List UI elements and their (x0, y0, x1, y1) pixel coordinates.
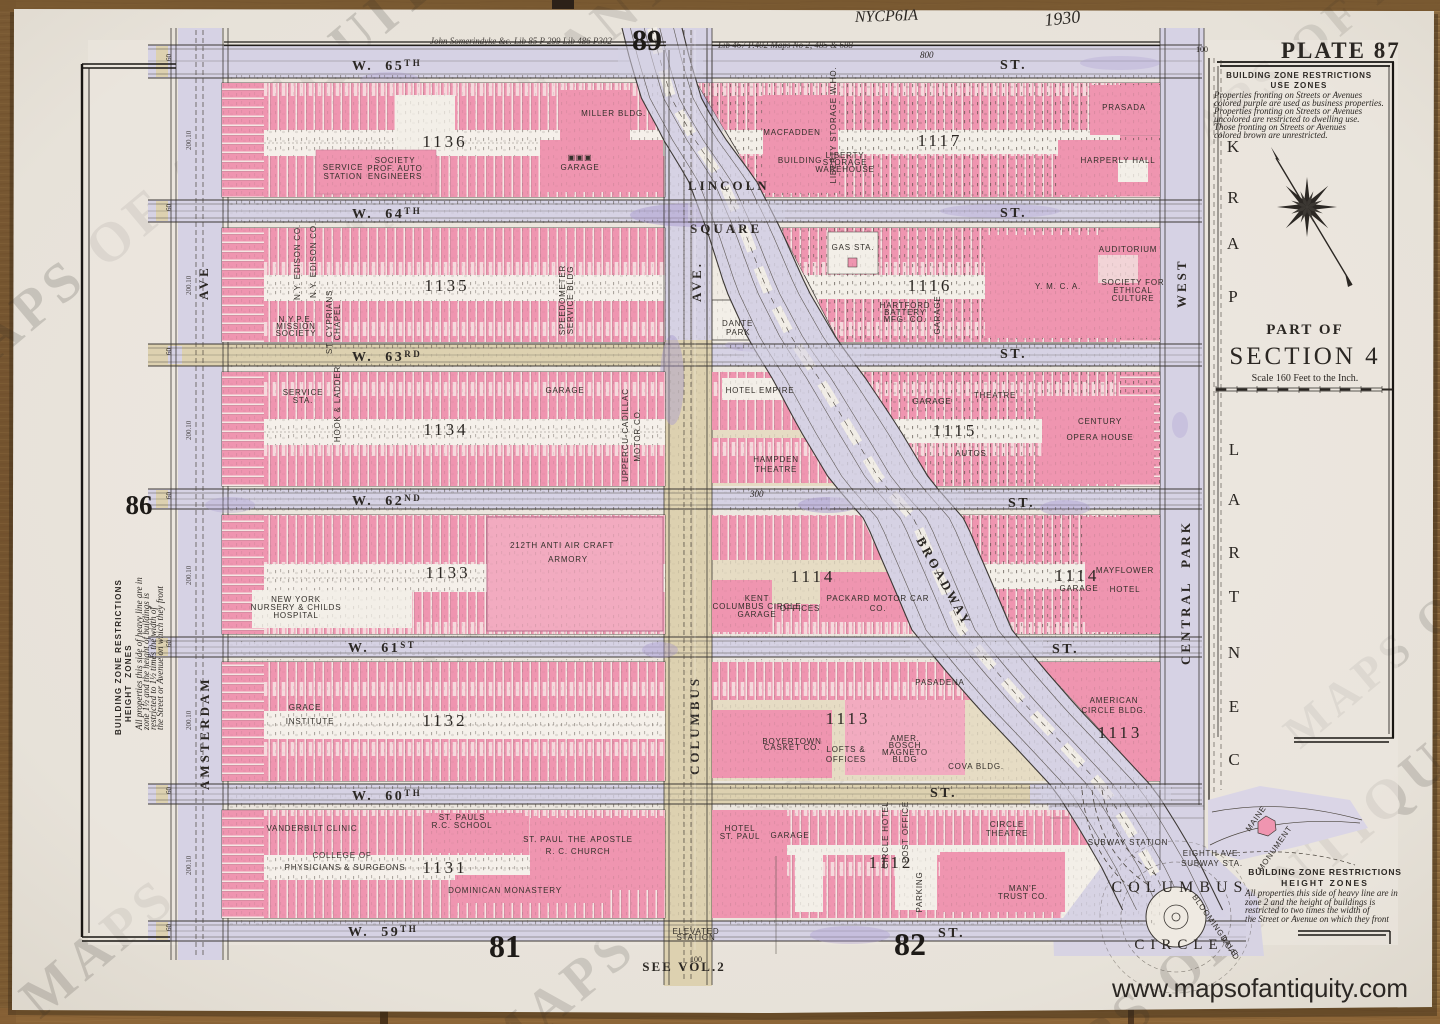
svg-text:GARAGE: GARAGE (545, 386, 584, 395)
svg-text:SECTION 4: SECTION 4 (1229, 343, 1380, 370)
svg-text:1136: 1136 (422, 132, 467, 151)
svg-text:BUILDING ZONE RESTRICTIONS: BUILDING ZONE RESTRICTIONS (1226, 71, 1372, 80)
svg-text:1133: 1133 (425, 563, 470, 582)
svg-text:PARK: PARK (726, 328, 750, 337)
svg-text:AVE: AVE (196, 265, 211, 300)
svg-text:N.Y. EDISON CO.: N.Y. EDISON CO. (309, 222, 318, 298)
svg-text:GARAGE: GARAGE (1059, 584, 1098, 593)
svg-text:1132: 1132 (422, 711, 467, 730)
svg-text:800: 800 (920, 50, 934, 60)
svg-text:AUTOS: AUTOS (955, 449, 986, 458)
svg-text:OPERA HOUSE: OPERA HOUSE (1066, 433, 1133, 442)
svg-text:LINCOLN: LINCOLN (688, 178, 770, 193)
svg-text:200.10: 200.10 (185, 565, 193, 585)
svg-text:CO.: CO. (870, 604, 887, 613)
svg-text:STA.: STA. (293, 396, 313, 405)
svg-text:COLUMBUS: COLUMBUS (1112, 879, 1249, 896)
svg-text:1117: 1117 (918, 131, 963, 150)
svg-text:MILLER: MILLER (581, 109, 615, 118)
svg-text:R.C. SCHOOL: R.C. SCHOOL (432, 821, 493, 830)
svg-text:ARMORY: ARMORY (548, 555, 588, 564)
svg-text:HOSPITAL: HOSPITAL (273, 611, 318, 620)
svg-text:CENTRAL PARK: CENTRAL PARK (1178, 520, 1193, 665)
svg-text:UPPERCU-CADILLAC: UPPERCU-CADILLAC (621, 388, 630, 482)
svg-text:the Street or Avenue on which: the Street or Avenue on which they front (1245, 914, 1389, 924)
svg-text:81: 81 (489, 928, 521, 964)
svg-text:CIRCLE HOTEL: CIRCLE HOTEL (881, 801, 890, 869)
svg-text:N: N (1228, 643, 1240, 662)
svg-text:TRUST CO.: TRUST CO. (998, 892, 1048, 901)
svg-text:DOMINICAN MONASTERY: DOMINICAN MONASTERY (448, 886, 562, 895)
svg-text:THEATRE: THEATRE (974, 391, 1016, 400)
svg-text:1115: 1115 (933, 421, 978, 440)
svg-text:HARPERLY HALL: HARPERLY HALL (1080, 156, 1155, 165)
svg-text:CENTURY: CENTURY (1078, 417, 1122, 426)
svg-text:60: 60 (165, 492, 173, 500)
svg-text:R: R (1228, 543, 1240, 562)
svg-text:BUILDING: BUILDING (778, 156, 822, 165)
svg-text:www.mapsofantiquity.com: www.mapsofantiquity.com (1111, 973, 1408, 1003)
svg-text:89: 89 (632, 24, 662, 57)
svg-text:ENGINEERS: ENGINEERS (368, 172, 422, 181)
svg-text:60: 60 (165, 787, 173, 795)
svg-text:USE ZONES: USE ZONES (1270, 81, 1327, 90)
svg-text:GRACE: GRACE (289, 703, 321, 712)
svg-text:200.10: 200.10 (185, 710, 193, 730)
svg-text:WAREHOUSE: WAREHOUSE (815, 165, 874, 174)
svg-text:John Somerindyke &c. Lib 85 P: John Somerindyke &c. Lib 85 P 299 Lib 48… (430, 36, 612, 46)
svg-text:Y. M. C. A.: Y. M. C. A. (1035, 282, 1081, 291)
svg-text:CIRCLE: CIRCLE (990, 820, 1024, 829)
svg-text:COVA BLDG.: COVA BLDG. (948, 762, 1004, 771)
svg-text:1114: 1114 (1055, 566, 1100, 585)
svg-text:A: A (1228, 490, 1241, 509)
svg-text:BUILDING ZONE RESTRICTIONS: BUILDING ZONE RESTRICTIONS (1248, 867, 1402, 877)
svg-text:STATION: STATION (676, 933, 715, 942)
svg-text:DANTE: DANTE (722, 319, 753, 328)
svg-text:1114: 1114 (791, 567, 836, 586)
svg-text:NYCP6IA: NYCP6IA (854, 7, 919, 26)
svg-text:AMERICAN: AMERICAN (1090, 696, 1139, 705)
svg-text:GARAGE: GARAGE (770, 831, 809, 840)
svg-text:1116: 1116 (908, 276, 953, 295)
svg-text:ST.: ST. (1052, 642, 1079, 657)
svg-text:CULTURE: CULTURE (1112, 294, 1155, 303)
svg-text:HOTEL EMPIRE: HOTEL EMPIRE (726, 386, 795, 395)
svg-text:colored brown are unrestricted: colored brown are unrestricted. (1214, 130, 1328, 140)
svg-text:SERVICE: SERVICE (323, 163, 364, 172)
svg-text:R. C. CHURCH: R. C. CHURCH (546, 847, 611, 856)
svg-text:200.10: 200.10 (185, 275, 193, 295)
svg-text:PARKING: PARKING (915, 871, 924, 912)
svg-text:86: 86 (126, 490, 153, 520)
svg-text:1113: 1113 (1098, 723, 1143, 742)
svg-text:COLLEGE OF: COLLEGE OF (312, 851, 371, 860)
svg-text:60: 60 (165, 924, 173, 932)
svg-text:GARAGE: GARAGE (560, 163, 599, 172)
svg-text:PLATE 87: PLATE 87 (1281, 38, 1401, 63)
svg-text:PHYSICIANS & SURGEONS: PHYSICIANS & SURGEONS (285, 863, 406, 872)
svg-text:PACKARD MOTOR CAR: PACKARD MOTOR CAR (827, 594, 930, 603)
svg-text:1134: 1134 (423, 420, 468, 439)
svg-text:STATION: STATION (323, 172, 362, 181)
svg-text:LOFTS &: LOFTS & (827, 745, 866, 754)
svg-text:1930: 1930 (1043, 6, 1081, 30)
svg-text:60: 60 (165, 640, 173, 648)
svg-text:ST. PAUL THE APOSTLE: ST. PAUL THE APOSTLE (523, 835, 633, 844)
svg-text:R: R (1227, 188, 1239, 207)
svg-text:CASKET CO.: CASKET CO. (764, 743, 820, 752)
svg-text:OFFICES: OFFICES (780, 604, 820, 613)
svg-text:Lib 467 P.402 Maps No 2, 485: Lib 467 P.402 Maps No 2, 485 & 688 (717, 40, 853, 50)
svg-text:ST.: ST. (1000, 206, 1027, 221)
svg-text:A: A (1227, 234, 1240, 253)
svg-text:THEATRE: THEATRE (986, 829, 1028, 838)
svg-text:HEIGHT ZONES: HEIGHT ZONES (124, 644, 133, 722)
svg-text:1135: 1135 (424, 276, 469, 295)
svg-text:PASADENA: PASADENA (915, 678, 964, 687)
svg-text:PRASADA: PRASADA (1102, 103, 1146, 112)
svg-text:1131: 1131 (422, 858, 467, 877)
svg-text:VANDERBILT CLINIC: VANDERBILT CLINIC (267, 824, 358, 833)
svg-text:HAMPDEN: HAMPDEN (753, 455, 799, 464)
svg-text:PART OF: PART OF (1266, 322, 1344, 338)
svg-text:POST OFFICE: POST OFFICE (901, 801, 910, 863)
svg-text:60: 60 (165, 54, 173, 62)
svg-text:212TH ANTI AIR CRAFT: 212TH ANTI AIR CRAFT (510, 541, 614, 550)
svg-text:N.Y. EDISON CO.: N.Y. EDISON CO. (293, 224, 302, 300)
svg-text:ST. PAUL: ST. PAUL (720, 832, 761, 841)
svg-text:the Street or Avenue on which: the Street or Avenue on which they front (155, 586, 165, 730)
svg-text:SQUARE: SQUARE (690, 221, 762, 236)
svg-text:GARAGE: GARAGE (737, 610, 776, 619)
svg-text:200.10: 200.10 (185, 855, 193, 875)
svg-text:GAS STA.: GAS STA. (832, 243, 875, 252)
svg-text:MAYFLOWER: MAYFLOWER (1096, 566, 1154, 575)
svg-text:Scale 160 Feet to the Inch.: Scale 160 Feet to the Inch. (1252, 373, 1359, 384)
svg-text:60: 60 (165, 348, 173, 356)
svg-text:E: E (1229, 697, 1239, 716)
svg-text:SOCIETY: SOCIETY (276, 329, 317, 338)
svg-text:AMSTERDAM: AMSTERDAM (197, 676, 212, 790)
svg-text:ST.: ST. (938, 926, 965, 941)
svg-text:WEST: WEST (1174, 258, 1189, 308)
svg-text:100: 100 (1196, 45, 1208, 54)
svg-text:ST.: ST. (930, 786, 957, 801)
svg-text:▣▣▣: ▣▣▣ (567, 153, 592, 162)
svg-text:L: L (1229, 440, 1239, 459)
svg-text:100: 100 (690, 955, 702, 964)
svg-text:T: T (1229, 587, 1240, 606)
svg-text:SEE VOL.2: SEE VOL.2 (642, 959, 725, 974)
svg-text:BUILDING ZONE RESTRICTIONS: BUILDING ZONE RESTRICTIONS (114, 579, 123, 735)
svg-text:CHAPEL: CHAPEL (333, 304, 342, 341)
svg-text:P: P (1228, 287, 1237, 306)
svg-text:GARAGE: GARAGE (933, 295, 942, 334)
svg-text:SUBWAY STA.: SUBWAY STA. (1181, 859, 1243, 868)
svg-text:BLDG: BLDG (893, 755, 918, 764)
svg-text:GARAGE: GARAGE (912, 397, 951, 406)
svg-text:OFFICES: OFFICES (826, 755, 866, 764)
svg-text:82: 82 (894, 926, 926, 962)
svg-text:ST.: ST. (1000, 347, 1027, 362)
svg-text:HOOK & LADDER: HOOK & LADDER (333, 366, 342, 442)
svg-text:THEATRE: THEATRE (755, 465, 797, 474)
svg-text:ST.: ST. (1000, 58, 1027, 73)
svg-text:MOTOR CO.: MOTOR CO. (633, 408, 642, 461)
svg-text:200.10: 200.10 (185, 420, 193, 440)
svg-text:EIGHTH AVE.: EIGHTH AVE. (1183, 849, 1241, 858)
svg-text:CIRCLE: CIRCLE (1134, 937, 1223, 953)
svg-text:200.10: 200.10 (185, 130, 193, 150)
svg-text:60: 60 (165, 204, 173, 212)
svg-text:MACFADDEN: MACFADDEN (763, 128, 820, 137)
svg-text:C: C (1228, 750, 1239, 769)
svg-text:SUBWAY STATION: SUBWAY STATION (1088, 838, 1169, 847)
svg-text:ST.: ST. (1008, 496, 1035, 511)
svg-text:CIRCLE BLDG.: CIRCLE BLDG. (1081, 706, 1146, 715)
svg-text:HOTEL: HOTEL (1110, 585, 1141, 594)
svg-text:INSTITUTE: INSTITUTE (286, 717, 335, 726)
svg-text:300: 300 (749, 489, 764, 499)
svg-text:BLDG.: BLDG. (618, 109, 646, 118)
svg-text:HEIGHT ZONES: HEIGHT ZONES (1281, 878, 1369, 888)
svg-text:MFG. CO.: MFG. CO. (884, 315, 927, 324)
svg-text:AUDITORIUM: AUDITORIUM (1099, 245, 1158, 254)
svg-text:1113: 1113 (826, 709, 871, 728)
svg-text:SERVICE BLDG: SERVICE BLDG (566, 266, 575, 335)
